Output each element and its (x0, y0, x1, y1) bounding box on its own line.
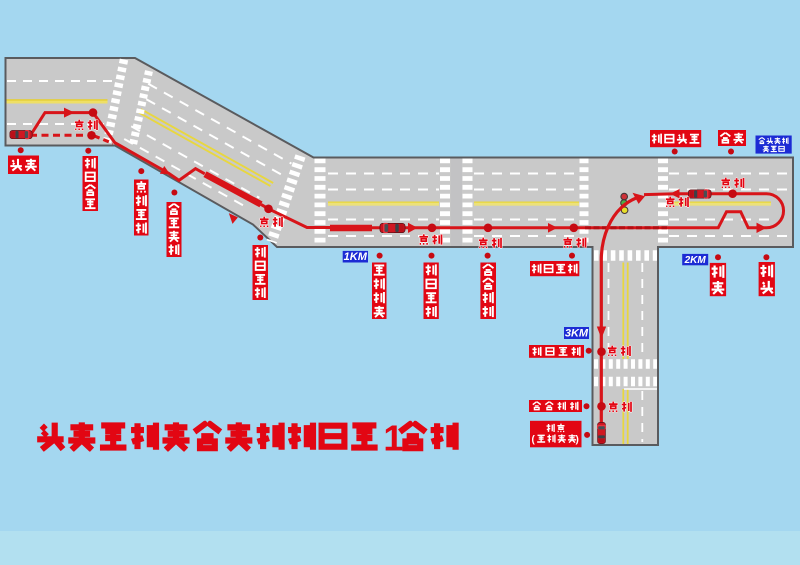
svg-text:2KM: 2KM (684, 255, 707, 266)
svg-text:1: 1 (383, 418, 403, 459)
svg-text:3KM: 3KM (565, 328, 589, 340)
svg-text:1KM: 1KM (344, 251, 368, 263)
svg-text:): ) (576, 435, 579, 446)
